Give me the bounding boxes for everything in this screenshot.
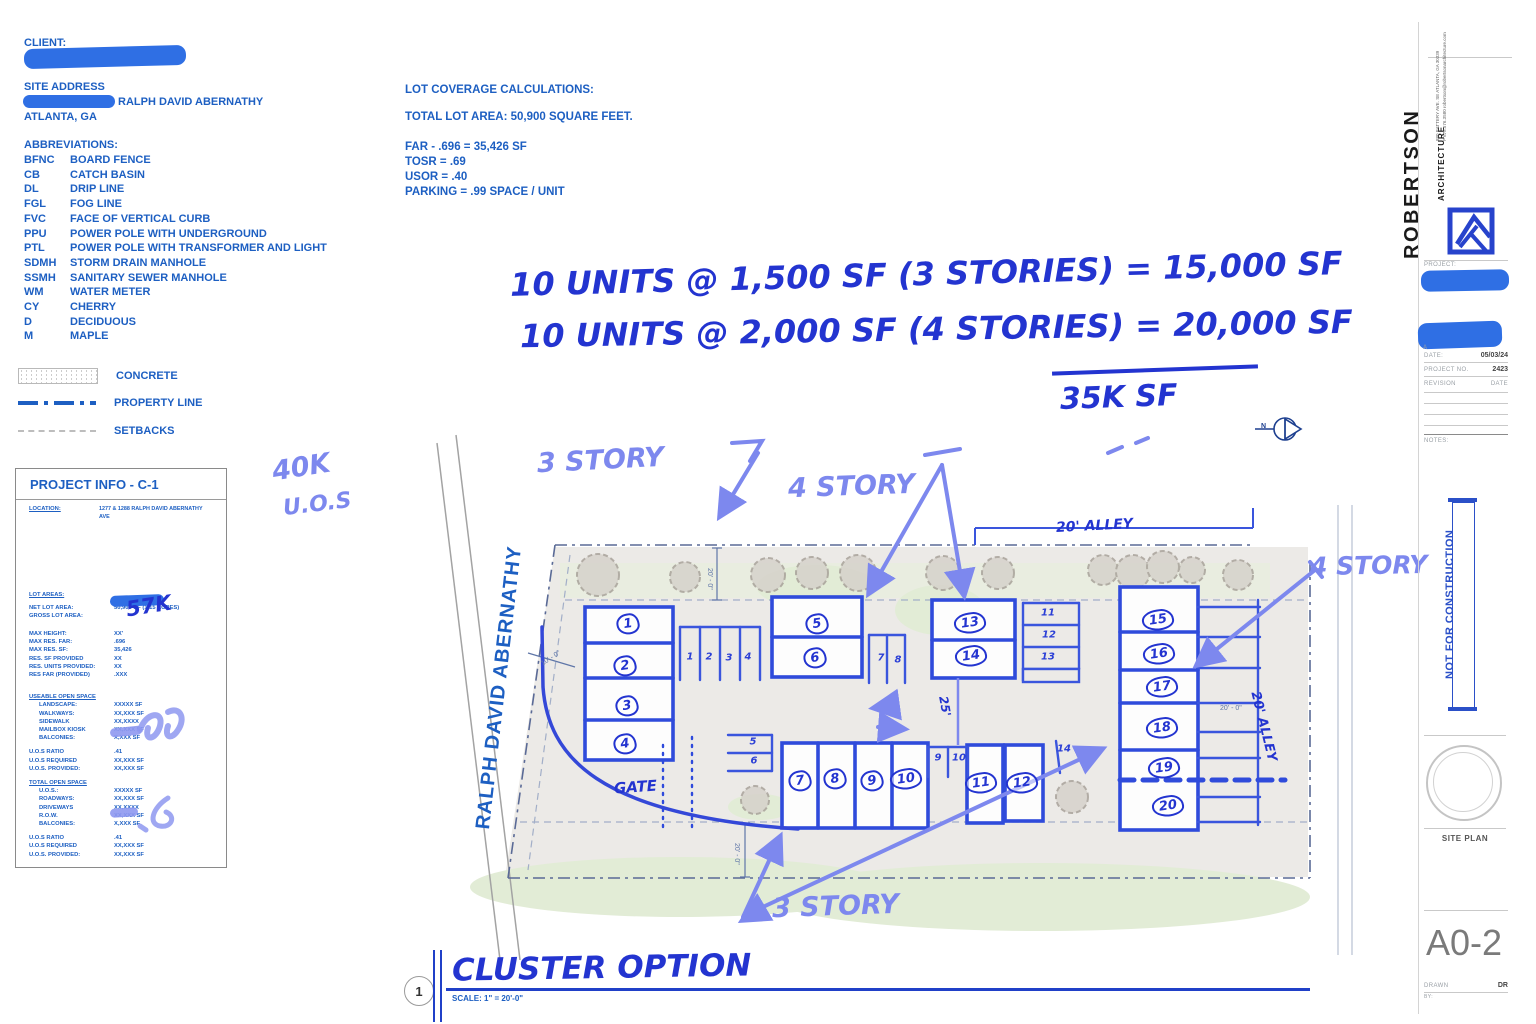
firm-name: ROBERTSON [1401,109,1424,259]
drawing-title-underline [446,988,1310,991]
address-number-redaction [23,95,115,108]
project-no-value: 2423 [1492,366,1508,373]
story-label-bottom: 3 STORY [771,889,899,924]
abbreviation-label: STORM DRAIN MANHOLE [70,256,206,271]
dim-20-bottom: 20' - 0" [733,843,740,865]
abbreviation-code: WM [24,285,70,300]
drawn-label: DRAWN [1424,983,1448,989]
abbreviation-label: WATER METER [70,285,150,300]
setbacks-swatch [18,430,96,432]
info-row: MAX HEIGHT:XX' [29,630,213,638]
project-name-redaction [1421,269,1509,292]
parking-number: 14 [1057,744,1071,755]
parking-number: 13 [1041,652,1055,663]
by-label: BY: [1424,994,1433,1000]
parking-number: 8 [895,655,902,666]
lot-coverage-title: LOT COVERAGE CALCULATIONS: [405,84,594,96]
info-row: GROSS LOT AREA: [29,612,213,620]
abbreviation-label: FACE OF VERTICAL CURB [70,212,210,227]
legend-concrete-label: CONCRETE [116,369,178,384]
info-row: MAX RES. SF:35,426 [29,646,213,654]
project-info-location-row: LOCATION: 1277 & 1288 RALPH DAVID ABERNA… [29,505,213,521]
hand-note-line1: 10 UNITS @ 1,500 SF (3 STORIES) = 15,000… [510,244,1343,304]
abbreviation-code: FVC [24,212,70,227]
concrete-swatch [18,368,98,384]
robertson-logo [1447,207,1495,255]
stamp-circle-inner [1433,752,1493,812]
abbreviation-label: FOG LINE [70,197,122,212]
abbreviations-title: ABBREVIATIONS: [24,138,118,153]
info-row: RES. UNITS PROVIDED:XX [29,663,213,671]
abbreviation-code: FGL [24,197,70,212]
location-label: LOCATION: [29,505,99,521]
gate-label: GATE [613,777,657,798]
notes-rule [1424,434,1508,435]
abbreviation-code: D [24,315,70,330]
rule [1424,362,1508,363]
abbreviation-code: CB [24,168,70,183]
nfc-cap-bottom [1448,707,1477,711]
abbreviation-code: CY [24,300,70,315]
abbreviation-row: SDMH STORM DRAIN MANHOLE [24,256,404,271]
info-row: U.O.S REQUIREDXX,XXX SF [29,757,213,765]
abbreviation-row: FVC FACE OF VERTICAL CURB [24,212,404,227]
legend-property-line-row: PROPERTY LINE [18,396,202,411]
firm-address: 880 BATTERY AVE. SE ATLANTA, GA 30339 [1435,51,1440,141]
abbreviation-code: PTL [24,241,70,256]
project-no-label: PROJECT NO. [1424,367,1469,373]
not-for-construction-text: NOT FOR CONSTRUCTION [1444,530,1456,679]
stamp-rule-bottom [1424,828,1506,829]
north-letter: N [1261,423,1266,430]
abbreviations-list: BFNC BOARD FENCE CB CATCH BASIN DL DRIP … [24,153,404,344]
sheet-no-rule [1424,910,1508,911]
title-tick-2 [440,950,442,1022]
hand-scribble-2 [134,788,190,836]
story-label-top: 3 STORY [536,442,664,480]
drawing-number: 1 [415,984,422,999]
site-address-city: ATLANTA, GA [24,110,97,125]
abbreviation-label: BOARD FENCE [70,153,151,168]
project-label: PROJECT: [1424,262,1456,268]
abbreviation-label: DECIDUOUS [70,315,136,330]
property-line-swatch [18,401,96,405]
legend-concrete-row: CONCRETE [18,368,178,384]
ratio-rows-2: U.O.S RATIO.41U.O.S REQUIREDXX,XXX SFU.O… [29,834,213,859]
hand-note-sum: 35K SF [1059,378,1178,417]
revision-line [1424,392,1508,393]
titleblock-top-rule [1428,57,1512,58]
site-address-line: RALPH DAVID ABERNATHY [118,95,263,110]
parking-number: 5 [750,737,757,748]
parking-number: 11 [1041,608,1055,619]
abbreviation-code: SDMH [24,256,70,271]
dim-20-top: 20' - 0" [706,568,713,590]
project-info-title-rule [16,499,226,500]
date-value: 05/03/24 [1481,352,1508,359]
parking-number: 6 [751,756,758,767]
revision-line [1424,425,1508,426]
lot-coverage-line: TOSR = .69 [405,155,565,170]
drawing-sheet: CLIENT: SITE ADDRESS RALPH DAVID ABERNAT… [0,0,1536,1024]
abbreviation-row: PTL POWER POLE WITH TRANSFORMER AND LIGH… [24,241,404,256]
abbreviation-code: BFNC [24,153,70,168]
hand-scribble-1 [126,700,190,754]
stamp-rule-top [1424,735,1506,736]
abbreviation-row: PPU POWER POLE WITH UNDERGROUND [24,227,404,242]
drawn-rule [1424,992,1508,993]
revision-header-row: REVISION DATE [1424,381,1508,387]
info-row: U.O.S. PROVIDED:XX,XXX SF [29,765,213,773]
revision-line [1424,414,1508,415]
lot-coverage-line: USOR = .40 [405,170,565,185]
info-row: U.O.S REQUIREDXX,XXX SF [29,842,213,850]
revision-date-label: DATE [1491,381,1508,387]
parking-number: 7 [878,653,885,664]
abbreviation-label: CATCH BASIN [70,168,145,183]
project-rule [1424,260,1508,261]
site-address-label: SITE ADDRESS [24,80,105,95]
lot-coverage-total: TOTAL LOT AREA: 50,900 SQUARE FEET. [405,111,633,123]
story-label-mid: 4 STORY [787,469,915,504]
project-no-row: PROJECT NO. 2423 [1424,366,1508,373]
hand-sum-rule [1052,364,1258,375]
lot-coverage-lines: FAR - .696 = 35,426 SFTOSR = .69USOR = .… [405,140,565,200]
info-row: RES. SF PROVIDEDXX [29,655,213,663]
abbreviation-code: PPU [24,227,70,242]
abbreviation-code: M [24,329,70,344]
drawn-value: DR [1498,982,1508,989]
drawing-number-bubble: 1 [404,976,434,1006]
sheet-title: SITE PLAN [1424,834,1506,843]
client-info-redaction [1418,321,1503,350]
location-value: 1277 & 1288 RALPH DAVID ABERNATHY AVE [99,505,213,521]
legend-setbacks-label: SETBACKS [114,424,175,439]
parking-number: 12 [1042,630,1056,641]
hand-note-line2: 10 UNITS @ 2,000 SF (4 STORIES) = 20,000… [520,303,1353,356]
abbreviation-row: SSMH SANITARY SEWER MANHOLE [24,271,404,286]
parking-number: 2 [706,652,713,663]
parking-number: 4 [745,652,752,663]
legend-property-line-label: PROPERTY LINE [114,396,202,411]
legend-setbacks-row: SETBACKS [18,424,175,439]
abbreviation-row: DL DRIP LINE [24,182,404,197]
drawing-title-handwritten: CLUSTER OPTION [452,947,752,988]
abbreviation-row: D DECIDUOUS [24,315,404,330]
firm-contact: P 678.576.3580 robertson@robertsonarchit… [1442,32,1447,141]
revision-label: REVISION [1424,381,1456,387]
abbreviation-row: M MAPLE [24,329,404,344]
hand-note-uos: U.O.S [282,488,353,521]
abbreviation-row: WM WATER METER [24,285,404,300]
total-open-space-header: TOTAL OPEN SPACE [29,779,213,787]
info-row: MAX RES. FAR:.696 [29,638,213,646]
info-row: U.O.S. PROVIDED:XX,XXX SF [29,851,213,859]
redaction-visible-fragment: A [1423,345,1427,351]
abbreviation-row: BFNC BOARD FENCE [24,153,404,168]
revision-line [1424,403,1508,404]
sheet-number: A0-2 [1426,922,1502,964]
parking-number: 10 [952,753,966,764]
abbreviation-label: CHERRY [70,300,116,315]
story-label-right: 4 STORY [1310,550,1428,581]
title-tick-1 [433,950,435,1022]
date-label: DATE: [1424,353,1443,359]
abbreviation-row: FGL FOG LINE [24,197,404,212]
abbreviation-row: CB CATCH BASIN [24,168,404,183]
drawing-scale: SCALE: 1" = 20'-0" [452,994,523,1003]
abbreviation-code: DL [24,182,70,197]
project-info-title: PROJECT INFO - C-1 [30,477,159,492]
abbreviation-label: POWER POLE WITH UNDERGROUND [70,227,267,242]
abbreviation-label: DRIP LINE [70,182,124,197]
client-name-redaction [24,45,186,69]
info-row: RES FAR (PROVIDED).XXX [29,671,213,679]
parking-number: 3 [726,653,733,664]
abbreviation-row: CY CHERRY [24,300,404,315]
drawn-row: DRAWN DR [1424,982,1508,989]
lot-coverage-line: FAR - .696 = 35,426 SF [405,140,565,155]
rule [1424,376,1508,377]
hand-note-40k: 40K [270,448,333,488]
dim-20-right: 20' - 0" [1220,705,1242,712]
lot-coverage-line: PARKING = .99 SPACE / UNIT [405,185,565,200]
abbreviation-label: MAPLE [70,329,109,344]
abbreviation-label: SANITARY SEWER MANHOLE [70,271,227,286]
parking-number: 9 [935,753,942,764]
parking-number: 1 [687,652,694,663]
date-row: DATE: 05/03/24 [1424,352,1508,359]
abbreviation-label: POWER POLE WITH TRANSFORMER AND LIGHT [70,241,327,256]
abbreviation-code: SSMH [24,271,70,286]
max-rows: MAX HEIGHT:XX'MAX RES. FAR:.696MAX RES. … [29,630,213,679]
notes-label: NOTES: [1424,438,1449,444]
